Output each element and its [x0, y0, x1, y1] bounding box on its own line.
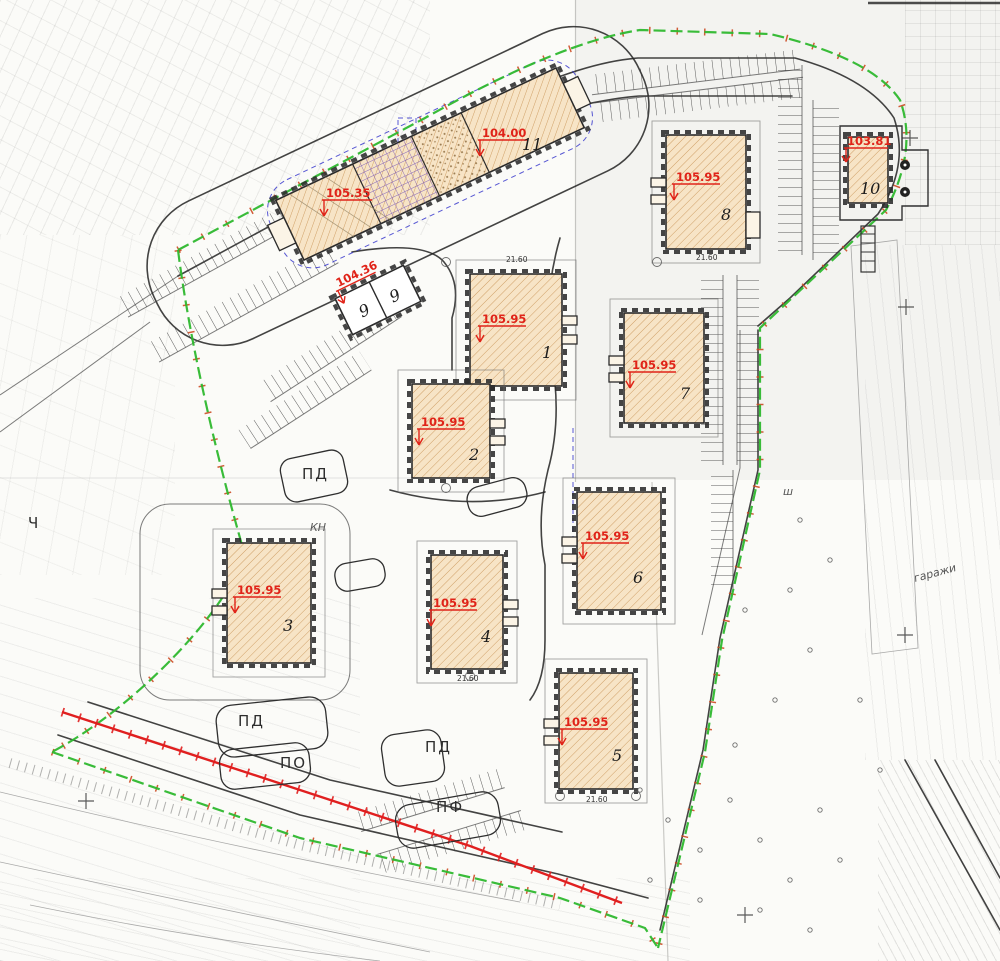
building-11: 105.35 104.00 11	[258, 58, 600, 270]
area-label-pd-center: ПД	[302, 465, 329, 483]
building-number: 2	[468, 445, 479, 464]
svg-text:104.00: 104.00	[482, 126, 526, 140]
building-number: 8	[721, 205, 731, 224]
building-number: 3	[283, 616, 293, 635]
svg-text:105.95: 105.95	[564, 715, 608, 729]
building-9: 9 9 104.36	[324, 246, 425, 339]
building-number: 11	[522, 135, 542, 154]
building-6: 6 105.95	[562, 478, 675, 624]
building-number: 6	[633, 568, 643, 587]
area-label-pd-bottom-center: ПД	[425, 738, 452, 756]
dimension-label: 21.60	[506, 255, 528, 264]
road-bottom-inner	[88, 702, 562, 832]
dimension-label: 21.60	[586, 795, 608, 804]
svg-text:105.95: 105.95	[237, 583, 281, 597]
svg-text:105.95: 105.95	[433, 596, 477, 610]
red-line	[62, 712, 622, 903]
building-8: 8 105.95	[651, 121, 760, 263]
building-1: 1 105.95	[456, 260, 577, 400]
svg-text:105.95: 105.95	[585, 529, 629, 543]
road-bottomright	[905, 760, 1000, 930]
label-sh: ш	[783, 485, 793, 498]
svg-text:105.95: 105.95	[421, 415, 465, 429]
parking-row	[711, 470, 733, 590]
site-plan-drawing: ПД ПД ПО ПД ПФ КН Ч ш гаражи	[0, 0, 1000, 961]
parking-row	[117, 198, 307, 317]
site-plan-scan: ПД ПД ПО ПД ПФ КН Ч ш гаражи	[0, 0, 1000, 961]
svg-text:105.95: 105.95	[676, 170, 720, 184]
building-3: 3 105.95	[212, 529, 325, 677]
building-5: 5 105.95	[544, 659, 647, 803]
playground	[333, 557, 387, 593]
label-garages: гаражи	[912, 561, 957, 585]
parking-row	[737, 275, 759, 465]
area-label-po: ПО	[280, 754, 307, 772]
label-ch: Ч	[28, 514, 40, 532]
svg-text:105.35: 105.35	[326, 186, 370, 200]
building-number: 10	[860, 179, 880, 198]
area-label-pd-bottom-left: ПД	[238, 712, 265, 730]
label-kn: КН	[310, 521, 326, 534]
svg-text:105.95: 105.95	[482, 312, 526, 326]
building-number: 4	[480, 627, 491, 646]
svg-text:103.81: 103.81	[847, 134, 891, 148]
parcel-strip-right	[851, 240, 918, 654]
building-10: 10 103.81	[840, 126, 928, 272]
dimension-label: 21.60	[696, 253, 718, 262]
building-number: 5	[612, 746, 622, 765]
building-2: 2 105.95	[398, 370, 505, 492]
parking-row	[813, 100, 839, 260]
contour-line	[30, 905, 380, 961]
building-number: 1	[542, 343, 552, 362]
building-7: 7 105.95	[609, 299, 718, 437]
building-4: 4 105.95	[417, 541, 518, 683]
area-label-pf: ПФ	[436, 798, 464, 816]
building-number: 7	[680, 384, 691, 403]
svg-text:105.95: 105.95	[632, 358, 676, 372]
parking-row	[778, 65, 802, 255]
dimension-label: 21.60	[457, 674, 479, 683]
